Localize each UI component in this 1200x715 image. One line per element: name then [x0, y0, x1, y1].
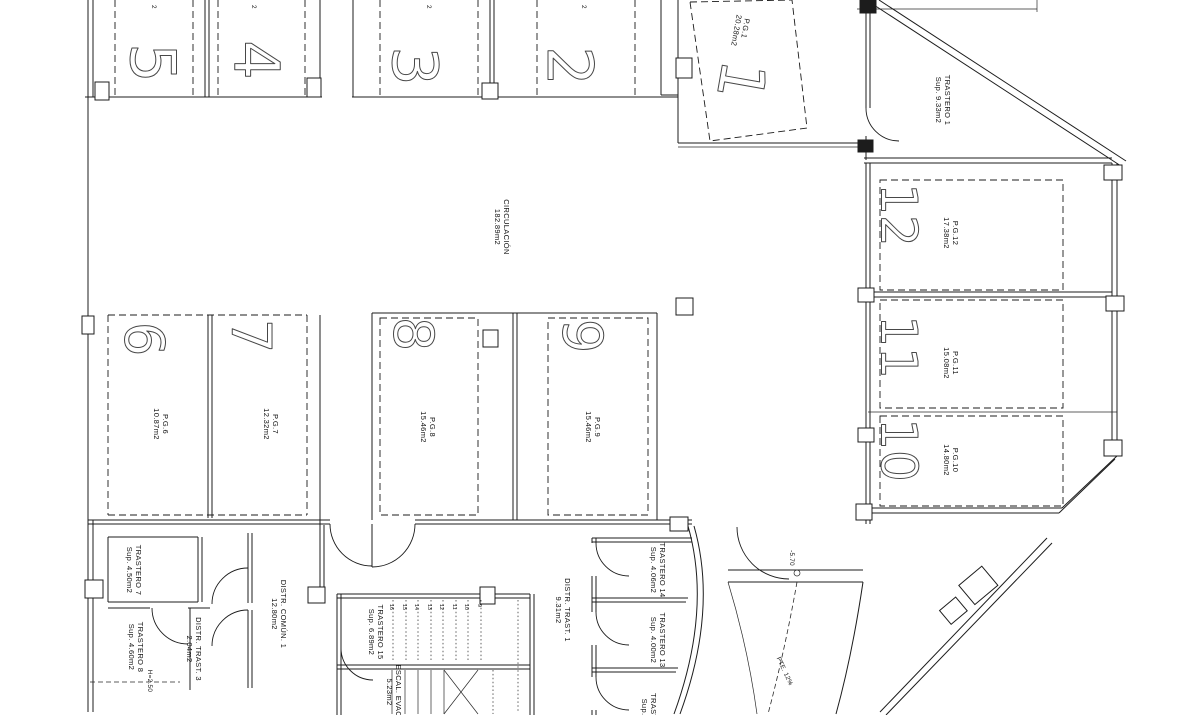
tread-number: 9	[476, 604, 482, 607]
parking-number-2: 2	[533, 46, 606, 85]
bay-11-area: 15.08m2	[942, 347, 951, 379]
distr-trast1-area: 9.31m2	[554, 596, 563, 623]
parking-number-9: 9	[550, 319, 613, 353]
bay-7-code: P.G.7	[271, 414, 280, 434]
bay-10-code: P.G.10	[951, 448, 960, 472]
trastero8-name: TRASTERO 8	[136, 622, 145, 673]
trastero1-area: Sup. 9.33m2	[934, 77, 943, 123]
distr-trast1-name: DISTR. TRAST. 1	[563, 578, 572, 642]
parking-number-10: 10	[870, 418, 928, 482]
trastero13-name: TRASTERO 13	[658, 612, 667, 667]
trastero15-name: TRASTERO 15	[376, 604, 385, 659]
escalera-area: 5.23m2	[385, 678, 394, 705]
entry-door-left-arc	[330, 524, 372, 566]
tread-number: 15	[401, 604, 407, 610]
bay-9-area: 15.46m2	[584, 411, 593, 443]
ramp-centerline	[768, 582, 797, 714]
parking-numbers: 5 4 3 2 1 6 7 8 9 12 11 10	[112, 40, 927, 482]
edge-text-fragment: 2	[150, 5, 157, 9]
level-marker-circle	[794, 570, 800, 576]
tread-number: 12	[438, 604, 444, 610]
floor-plan-drawing: 16 15 14 13 12 11 10 9 5 4 3 2 1	[0, 0, 1200, 715]
trastero8-area: Sup. 4.60m2	[127, 624, 136, 670]
trastero12-partial-area: Sup.	[640, 699, 649, 715]
trastero1-door-arc	[866, 108, 899, 141]
trastero14-area: Sup. 4.06m2	[649, 547, 658, 593]
diamond-column-small	[940, 597, 968, 624]
parking-number-5: 5	[116, 43, 189, 82]
bay-9-code: P.G.9	[593, 417, 602, 437]
bay-6-code: P.G.6	[161, 414, 170, 434]
trastero13-area: Sup. 4.00m2	[649, 617, 658, 663]
distr-trast3-door-arc	[212, 610, 248, 646]
distr-comun1-area: 12.80m2	[270, 598, 279, 630]
parking-number-7: 7	[219, 319, 282, 353]
bay-8-area: 15.46m2	[419, 411, 428, 443]
floor-plan: 16 15 14 13 12 11 10 9 5 4 3 2 1	[0, 0, 1200, 715]
tread-number: 13	[426, 604, 432, 610]
trastero12-partial-name: TRAST.	[649, 693, 658, 715]
bay-12-code: P.G.12	[951, 221, 960, 245]
slope-annotation: PTE. 12%	[775, 656, 794, 687]
bay-12-area: 17.38m2	[942, 217, 951, 249]
parking-number-12: 12	[870, 183, 928, 247]
walls	[85, 0, 1126, 715]
trastero14-name: TRASTERO 14	[658, 542, 667, 597]
stair-tread-numbers: 16 15 14 13 12 11 10 9	[388, 604, 482, 610]
trastero8-door-arc	[152, 608, 188, 644]
trastero12-door-arc	[596, 677, 629, 710]
stair-lower-treads	[392, 670, 493, 714]
bay-8-code: P.G.8	[428, 417, 437, 437]
escalera-name: ESCAL. EVAC.	[394, 665, 403, 715]
trastero1-name: TRASTERO 1	[943, 75, 952, 126]
structural-columns	[82, 0, 1124, 624]
level-annotation: -5.70	[788, 550, 795, 566]
parking-number-3: 3	[378, 46, 451, 85]
tread-number: 11	[451, 604, 457, 610]
bay-10-area: 14.80m2	[942, 444, 951, 476]
distr-trast3-name: DISTR. TRAST. 3	[194, 617, 203, 681]
bay-11-code: P.G.11	[951, 351, 960, 375]
trastero15-area: Sup. 6.89m2	[367, 609, 376, 655]
edge-text-fragment: 2	[250, 5, 257, 9]
tread-number: 14	[413, 604, 419, 610]
parking-number-8: 8	[381, 317, 444, 351]
trastero7-door-arc	[212, 568, 248, 604]
parking-number-11: 11	[870, 315, 928, 379]
height-annotation: H=2.50	[146, 670, 153, 692]
trastero7-area: Sup. 4.50m2	[125, 547, 134, 593]
parking-number-4: 4	[220, 40, 293, 79]
circulation-area: 182.89m2	[493, 209, 502, 245]
distr-comun1-name: DISTR. COMÚN. 1	[279, 580, 288, 649]
bay-1-area: 20.28m2	[729, 14, 743, 47]
corridor-door-arc	[737, 527, 789, 579]
edge-text-fragment: 2	[425, 5, 432, 9]
parking-number-6: 6	[112, 322, 175, 356]
stair: 16 15 14 13 12 11 10 9	[388, 600, 518, 714]
parking-number-1: 1	[702, 55, 781, 107]
tread-number: 16	[388, 604, 394, 610]
circulation-name: CIRCULACIÓN	[502, 199, 511, 255]
trastero7-name: TRASTERO 7	[134, 545, 143, 596]
edge-text-fragment: 2	[580, 5, 587, 9]
bay-6-area: 10.87m2	[152, 408, 161, 440]
trastero14-door-arc	[596, 543, 629, 576]
entry-door-right-arc	[372, 524, 415, 567]
trastero13-door-arc	[596, 612, 629, 645]
room-labels: P.G.1 20.28m2 TRASTERO 1 Sup. 9.33m2 P.G…	[125, 5, 960, 715]
tread-number: 10	[463, 604, 469, 610]
diamond-column-large	[959, 566, 998, 604]
stair-upper-treads	[393, 600, 518, 712]
bay-7-area: 12.32m2	[262, 408, 271, 440]
distr-trast3-area: 2.04m2	[185, 635, 194, 662]
